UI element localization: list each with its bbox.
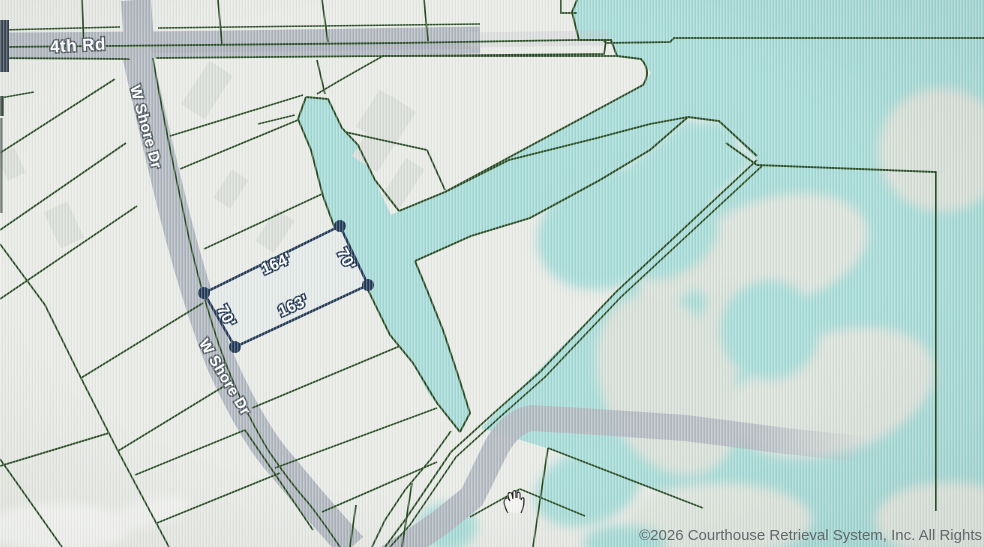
svg-text:©2026 Courthouse Retrieval Sys: ©2026 Courthouse Retrieval System, Inc. … <box>639 527 982 544</box>
